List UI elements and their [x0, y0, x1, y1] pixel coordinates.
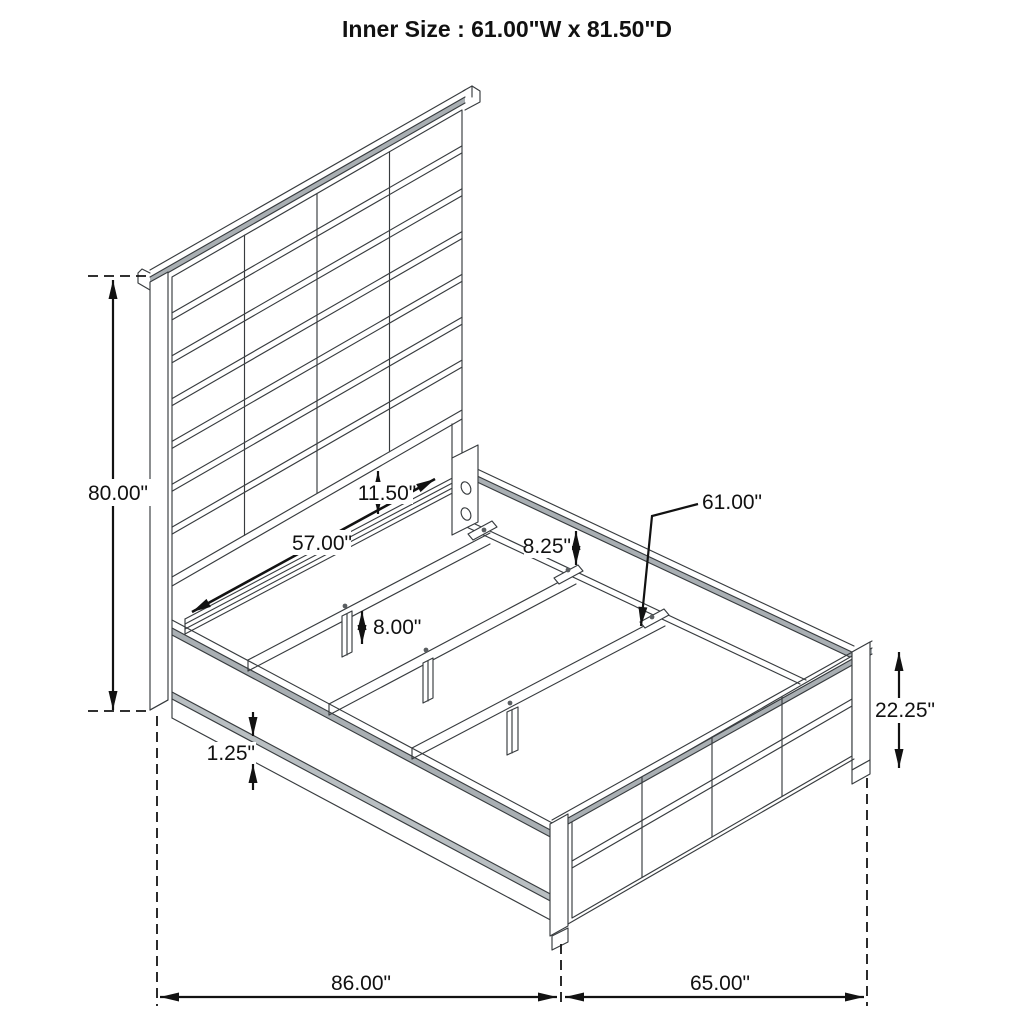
diagram-canvas: Inner Size : 61.00"W x 81.50"D	[0, 0, 1024, 1024]
dim-footboard-height-label: 22.25"	[875, 699, 935, 722]
dim-center-leg-height-label: 8.00"	[373, 616, 421, 639]
dim-rail-above-slat-label: 8.25"	[523, 535, 571, 558]
dim-overall-depth-label: 86.00"	[331, 972, 391, 995]
dim-overall-width-label: 65.00"	[690, 972, 750, 995]
footboard-left-post	[550, 814, 568, 936]
dim-slat-length-label: 61.00"	[702, 491, 762, 514]
rail-bracket	[452, 445, 478, 535]
dim-side-rail-lip-label: 1.25"	[207, 742, 255, 765]
footboard-right-post	[852, 642, 870, 770]
inner-size-title: Inner Size : 61.00"W x 81.50"D	[342, 16, 672, 42]
dim-headboard-panel-width-label: 57.00"	[292, 532, 352, 555]
dim-headboard-clearance-label: 11.50"	[358, 482, 416, 505]
bed-dimension-diagram: Inner Size : 61.00"W x 81.50"D	[0, 0, 1024, 1024]
headboard-left-post	[150, 272, 168, 710]
dim-overall-height-label: 80.00"	[88, 482, 148, 505]
